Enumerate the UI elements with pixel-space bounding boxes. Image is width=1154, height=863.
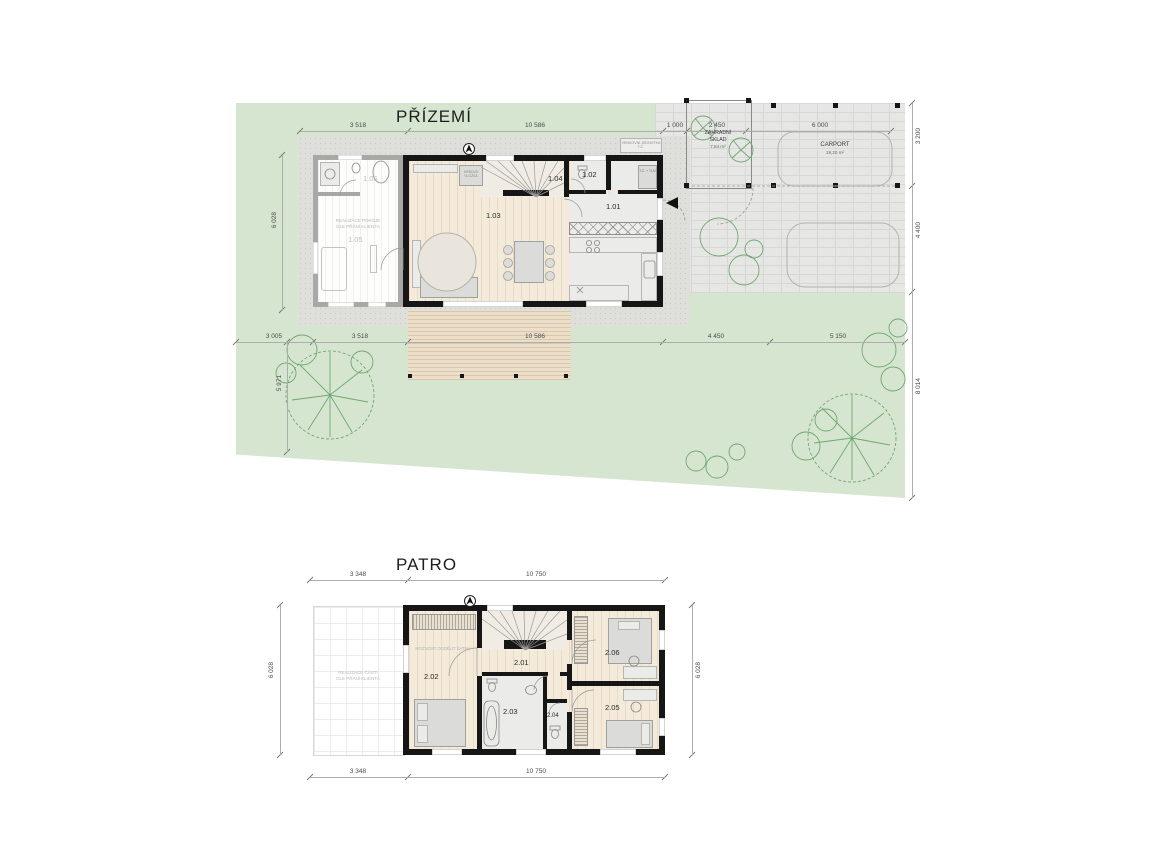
wall xyxy=(572,681,659,686)
dining-table xyxy=(514,241,544,283)
wall xyxy=(477,611,482,648)
dim-line xyxy=(912,103,913,498)
window xyxy=(584,155,606,161)
pillow xyxy=(641,723,650,745)
terrace-door xyxy=(443,301,523,307)
terrace xyxy=(408,310,571,380)
window xyxy=(600,749,636,755)
dim-label: 10 586 xyxy=(505,122,565,129)
entrance-arrow-icon xyxy=(666,197,678,209)
desk-206 xyxy=(623,666,657,679)
wardrobe-202 xyxy=(412,614,476,630)
pillow xyxy=(618,621,640,630)
dim-line xyxy=(310,777,665,778)
annex-partition xyxy=(318,192,360,196)
pillow xyxy=(417,703,428,721)
annex-window xyxy=(338,155,362,160)
annex-window xyxy=(313,242,318,274)
dim-label: 5 150 xyxy=(813,333,863,340)
shed-area: 7,84 m² xyxy=(710,144,726,149)
shed-post xyxy=(684,183,689,188)
annex-note-line1: REALIZACE POKOJE xyxy=(336,218,381,223)
dim-label: 6 028 xyxy=(695,662,702,678)
annex-wardrobe xyxy=(370,245,377,273)
terrace-post xyxy=(514,374,518,378)
dim-label: 3 518 xyxy=(333,122,383,129)
wall xyxy=(477,676,482,749)
carport-post xyxy=(895,103,900,108)
room-label-202: 2.02 xyxy=(424,672,439,681)
wall xyxy=(567,664,572,690)
fireplace-label: KRBOVÁ VLOŽKA xyxy=(459,170,483,178)
shed-name-line1: ZAHRADNÍ xyxy=(705,130,732,136)
kitchen-counter-bottom xyxy=(569,285,629,301)
window xyxy=(659,718,665,736)
dim-line xyxy=(692,605,693,755)
dim-label: 3 348 xyxy=(333,571,383,578)
terrace-post xyxy=(460,374,464,378)
window xyxy=(487,605,513,611)
dim-line xyxy=(236,342,905,343)
room-label-204: 2.04 xyxy=(547,713,559,719)
sofa xyxy=(420,277,478,298)
shed-name-line2: SKLAD xyxy=(709,137,726,143)
window xyxy=(659,630,665,650)
desk-205 xyxy=(623,689,657,701)
dim-label: 6 028 xyxy=(268,662,275,678)
room-label-101: 1.01 xyxy=(606,202,621,211)
carport-post xyxy=(833,183,838,188)
wardrobe-hall xyxy=(569,222,657,235)
dim-label: 10 750 xyxy=(506,768,566,775)
terrace-post xyxy=(408,374,412,378)
window xyxy=(486,155,514,161)
dim-label: 8 014 xyxy=(915,378,922,394)
room-label-105: 1.05 xyxy=(348,235,363,244)
window xyxy=(657,252,663,276)
annex-window xyxy=(368,302,386,307)
dim-label: 10 586 xyxy=(505,333,565,340)
carport-post xyxy=(833,103,838,108)
annex-note-line2: DLE PŘÁNÍ KLIENTA xyxy=(336,224,379,229)
dim-label: 4 450 xyxy=(691,333,741,340)
wc-upper-floor xyxy=(545,703,567,749)
annex-window xyxy=(328,302,354,307)
dim-line xyxy=(282,155,283,310)
dim-label: 5 971 xyxy=(276,375,283,391)
dim-line xyxy=(287,342,288,452)
dim-label: 10 750 xyxy=(506,571,566,578)
room-label-206: 2.06 xyxy=(605,648,620,657)
wardrobe-205 xyxy=(574,708,588,746)
shower xyxy=(320,162,340,186)
wall xyxy=(560,672,567,676)
shed-post xyxy=(746,98,751,103)
window xyxy=(516,749,546,755)
room-label-102: 1.02 xyxy=(582,170,597,179)
dim-label: 6 000 xyxy=(795,122,845,129)
room-label-103: 1.03 xyxy=(486,211,501,220)
carport-post xyxy=(771,103,776,108)
entry-door-opening xyxy=(657,198,663,220)
wardrobe-note: MOŽNOST ODDĚLIT ŠATNU xyxy=(409,646,477,651)
room-label-205: 2.05 xyxy=(605,703,620,712)
shed-post xyxy=(684,98,689,103)
wall xyxy=(618,190,657,194)
dim-label: 3 005 xyxy=(250,333,298,340)
stair-railing-upper xyxy=(504,640,546,649)
dim-label: 4 400 xyxy=(915,222,922,238)
carport-post xyxy=(895,183,900,188)
ground-floor-title: PŘÍZEMÍ xyxy=(396,107,472,127)
carport-post xyxy=(771,183,776,188)
dim-line xyxy=(300,131,891,132)
window xyxy=(432,749,462,755)
room-label-104: 1.04 xyxy=(548,174,563,183)
bookshelf xyxy=(413,164,458,173)
window xyxy=(586,301,622,307)
terrace-post xyxy=(564,374,568,378)
shed-label: ZAHRADNÍ SKLAD 7,84 m² xyxy=(686,130,750,150)
annex-sofa xyxy=(321,247,347,291)
kitchen-counter-right xyxy=(641,253,657,301)
dim-line xyxy=(280,605,281,755)
carport-name: CARPORT xyxy=(820,142,849,148)
shed-post xyxy=(746,183,751,188)
dim-label: 3 200 xyxy=(915,128,922,144)
room-label-203: 2.03 xyxy=(503,707,518,716)
floor-plan-sheet: PŘÍZEMÍ 3 518 10 586 1 000 2 450 6 000 3… xyxy=(0,0,1154,863)
dim-label: 2 450 xyxy=(694,122,740,129)
dim-label: 3 348 xyxy=(333,768,383,775)
wall xyxy=(569,190,606,194)
wall xyxy=(567,611,572,640)
dim-label: 3 518 xyxy=(335,333,385,340)
wall xyxy=(482,672,548,676)
pillow xyxy=(417,725,428,743)
dim-label: 1 000 xyxy=(655,122,695,129)
carport-area: 19,20 m² xyxy=(826,150,844,155)
kitchen-counter-top xyxy=(569,237,657,253)
tech-unit-label: T.Č. + TUV xyxy=(639,169,656,173)
room-label-106: 1.06 xyxy=(363,174,378,183)
stair-railing xyxy=(503,190,549,196)
annex-client-note: REALIZACE POKOJE DLE PŘÁNÍ KLIENTA xyxy=(318,218,398,230)
upper-floor-title: PATRO xyxy=(396,555,457,575)
room-label-201: 2.01 xyxy=(514,658,529,667)
outdoor-unit-label: VENKOVNÍ JEDNOTKA T.Č. xyxy=(620,138,662,153)
upper-annex-client-note: REALIZACE ČÁSTI DLE PŘÁNÍ KLIENTA xyxy=(318,670,398,682)
wall xyxy=(606,161,611,190)
dim-label: 6 028 xyxy=(271,212,278,228)
dim-line xyxy=(310,580,665,581)
upper-annex-note-line2: DLE PŘÁNÍ KLIENTA xyxy=(336,676,379,681)
wall xyxy=(547,699,567,703)
wardrobe-206 xyxy=(574,616,588,664)
upper-annex-note-line1: REALIZACE ČÁSTI xyxy=(338,670,378,675)
carport-label: CARPORT 19,20 m² xyxy=(800,142,870,157)
wall xyxy=(567,712,572,749)
